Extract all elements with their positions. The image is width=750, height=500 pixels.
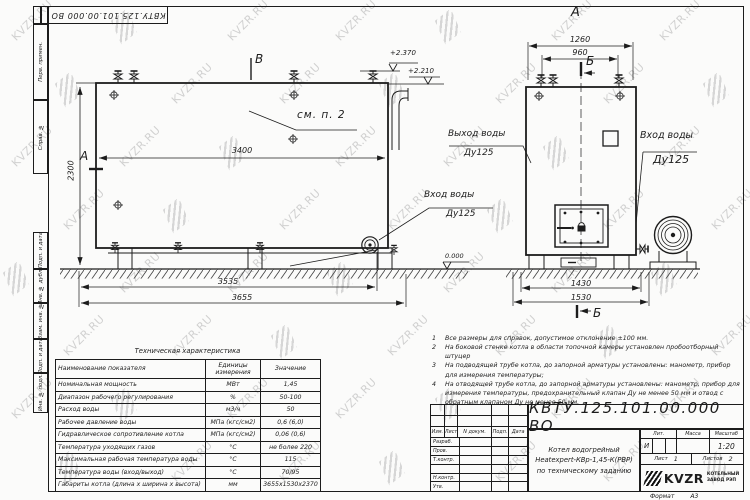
spec-cell-value: не более 220 — [261, 441, 321, 454]
note: 2На боковой стенке котла в области топоч… — [432, 343, 740, 361]
spec-cell-value: 70/95 — [261, 466, 321, 479]
sheets-value: 2 — [729, 455, 733, 463]
mass-label: Масса — [677, 430, 709, 438]
note-text: Все размеры для справок, допустимое откл… — [445, 334, 740, 343]
dim-3400: 3400 — [212, 146, 272, 155]
margin-top-cell-2 — [41, 6, 49, 24]
dim-1530: 1530 — [551, 293, 611, 302]
role-razrab: Разраб. — [431, 438, 460, 446]
spec-cell-name: Температура воды (вход/выход) — [56, 466, 206, 479]
note-number: 4 — [432, 380, 445, 407]
company-name: КОТЕЛЬНЫЙ ЗАВОД РЭП — [707, 472, 739, 483]
spec-row: Максимальная рабочая температура воды°С1… — [56, 454, 321, 467]
spec-row: Рабочее давление водыМПа (кгс/см2)0,6 (6… — [56, 416, 321, 429]
note: 1Все размеры для справок, допустимое отк… — [432, 334, 740, 343]
margin-cell-perv-primen: Перв. примен. — [33, 24, 48, 100]
note-number: 2 — [432, 343, 445, 361]
lit-value: И — [641, 439, 653, 453]
spec-row: Расход водым3/ч50 — [56, 404, 321, 417]
spec-cell-name: Номинальная мощность — [56, 379, 206, 392]
role-utv: Утв. — [431, 482, 460, 491]
role-tkontr: Т.контр. — [431, 456, 460, 464]
scale-value: 1:20 — [710, 439, 743, 453]
margin-cell-vzam-inv: Взам. инв. № — [33, 303, 48, 339]
dim-1430: 1430 — [551, 279, 611, 288]
sheet-value: 1 — [674, 455, 678, 463]
spec-cell-name: Расход воды — [56, 404, 206, 417]
view-letter-a-right: А — [571, 5, 580, 20]
spec-col-value: Значение — [261, 360, 321, 379]
margin-cell-podp-data-2: Подп. и дата — [33, 339, 48, 373]
note-number: 1 — [432, 334, 445, 343]
see-note-label: см. п. 2 — [297, 109, 346, 121]
kvzr-logo-text: KVZR — [664, 471, 704, 486]
note-number: 3 — [432, 361, 445, 379]
role-prov: Пров. — [431, 447, 460, 455]
product-name-line3: по техническому заданию — [537, 466, 632, 477]
spec-row: Номинальная мощностьМВт1,45 — [56, 379, 321, 392]
spec-row: Температура воды (вход/выход)°С70/95 — [56, 466, 321, 479]
spec-cell-value: 50-100 — [261, 391, 321, 404]
product-name-line2: Heatexpert-КВр-1,45-К(РВР) — [535, 455, 633, 466]
margin-cell-inv-dubl: Инв. № дубл. — [33, 269, 48, 303]
spec-cell-name: Габариты котла (длина х ширина х высота) — [56, 479, 206, 492]
note: 3На подводящей трубе котла, до запорной … — [432, 361, 740, 379]
kvzr-logo-icon — [643, 471, 662, 486]
notes-list: 1Все размеры для справок, допустимое отк… — [432, 334, 740, 407]
dim-1260: 1260 — [550, 35, 610, 44]
margin-cell-podp-data-1: Подп. и дата — [33, 232, 48, 269]
spec-cell-name: Рабочее давление воды — [56, 416, 206, 429]
inlet-label-right-title: Вход воды — [640, 130, 693, 141]
title-block-product-name: Котел водогрейный Heatexpert-КВр-1,45-К(… — [528, 429, 640, 492]
spec-cell-value: 115 — [261, 454, 321, 467]
spec-cell-name: Температура уходящих газов — [56, 441, 206, 454]
dim-3655: 3655 — [212, 293, 272, 302]
spec-cell-units: МВт — [206, 379, 261, 392]
spec-row: Диапазон рабочего регулирования%50-100 — [56, 391, 321, 404]
spec-row: Габариты котла (длина х ширина х высота)… — [56, 479, 321, 492]
title-block-right: Лит. Масса Масштаб И 1:20 Лист 1 Листов … — [640, 429, 744, 492]
dim-960: 960 — [555, 48, 605, 57]
product-name-line1: Котел водогрейный — [548, 445, 619, 456]
company-logo-row: KVZR КОТЕЛЬНЫЙ ЗАВОД РЭП — [641, 465, 743, 491]
dim-3535: 3535 — [198, 277, 258, 286]
spec-table-wrap: Техническая характеристика Наименование … — [55, 347, 320, 492]
sheet-label: Лист — [654, 456, 668, 462]
format-note: Формат А3 — [650, 493, 698, 500]
spec-row: Гидравлическое сопротивление котлаМПа (к… — [56, 429, 321, 442]
role-blank — [431, 465, 460, 473]
col-doc: N докум. — [458, 427, 491, 437]
inlet-label-mid-dn: Ду125 — [446, 209, 476, 219]
spec-col-name: Наименование показателя — [56, 360, 206, 379]
note-text: На боковой стенке котла в области топочн… — [445, 343, 740, 361]
spec-cell-name: Гидравлическое сопротивление котла — [56, 429, 206, 442]
section-letter-v: В — [255, 52, 263, 66]
spec-cell-value: 50 — [261, 404, 321, 417]
sheets-label: Листов — [702, 456, 722, 462]
drawing-sheet: KVZR.RUKVZR.RUKVZR.RUKVZR.RUKVZR.RUKVZR.… — [0, 0, 750, 500]
spec-table-title: Техническая характеристика — [55, 347, 320, 359]
title-block-left-grid: Изм. Лист N докум. Подп. Дата Разраб. Пр… — [430, 404, 528, 492]
margin-top-cell-1 — [33, 6, 41, 24]
col-sign: Подп. — [492, 427, 510, 437]
format-label: Формат — [650, 493, 674, 500]
spec-row: Температура уходящих газов°Сне более 220 — [56, 441, 321, 454]
elevation-2370: +2.370 — [390, 49, 416, 57]
spec-cell-units: мм — [206, 479, 261, 492]
inlet-label-mid-title: Вход воды — [424, 190, 474, 200]
top-stamp-code: КВТУ.125.101.00.000 ВО — [51, 11, 166, 20]
inlet-label-right-dn: Ду125 — [653, 153, 689, 166]
section-letter-a-left: А — [80, 149, 88, 163]
spec-cell-units: °С — [206, 466, 261, 479]
elevation-2210: +2.210 — [408, 67, 434, 75]
title-block-doc-number: КВТУ.125.101.00.000 ВО — [528, 404, 744, 429]
role-nkontr: Н.контр. — [431, 474, 460, 482]
col-list: Лист — [445, 427, 459, 437]
scale-label: Масштаб — [710, 430, 743, 438]
lit-label: Лит. — [641, 430, 677, 438]
spec-cell-units: МПа (кгс/см2) — [206, 429, 261, 442]
spec-cell-units: % — [206, 391, 261, 404]
elevation-0000: 0.000 — [445, 252, 464, 260]
spec-cell-value: 0,06 (0,6) — [261, 429, 321, 442]
spec-cell-value: 1,45 — [261, 379, 321, 392]
spec-cell-value: 0,6 (6,0) — [261, 416, 321, 429]
format-value: А3 — [690, 493, 698, 500]
col-date: Дата — [509, 427, 527, 437]
outlet-label-dn: Ду125 — [464, 148, 494, 158]
margin-cell-inv-podl: Инв. № подл. — [33, 373, 48, 413]
spec-cell-units: м3/ч — [206, 404, 261, 417]
col-izm: Изм. — [431, 427, 445, 437]
spec-cell-name: Максимальная рабочая температура воды — [56, 454, 206, 467]
spec-cell-value: 3655х1530х2370 — [261, 479, 321, 492]
spec-cell-units: МПа (кгс/см2) — [206, 416, 261, 429]
top-stamp: КВТУ.125.101.00.000 ВО — [48, 6, 168, 24]
spec-cell-units: °С — [206, 454, 261, 467]
spec-table: Наименование показателя Единицы измерени… — [55, 359, 321, 492]
spec-col-units: Единицы измерения — [206, 360, 261, 379]
outlet-label-title: Выход воды — [448, 129, 505, 139]
spec-cell-name: Диапазон рабочего регулирования — [56, 391, 206, 404]
margin-cell-sprav-no: Справ. № — [33, 100, 48, 174]
note-text: На подводящей трубе котла, до запорной а… — [445, 361, 740, 379]
dim-2300: 2300 — [67, 152, 76, 190]
section-letter-b-bottom: Б — [593, 306, 601, 320]
spec-cell-units: °С — [206, 441, 261, 454]
